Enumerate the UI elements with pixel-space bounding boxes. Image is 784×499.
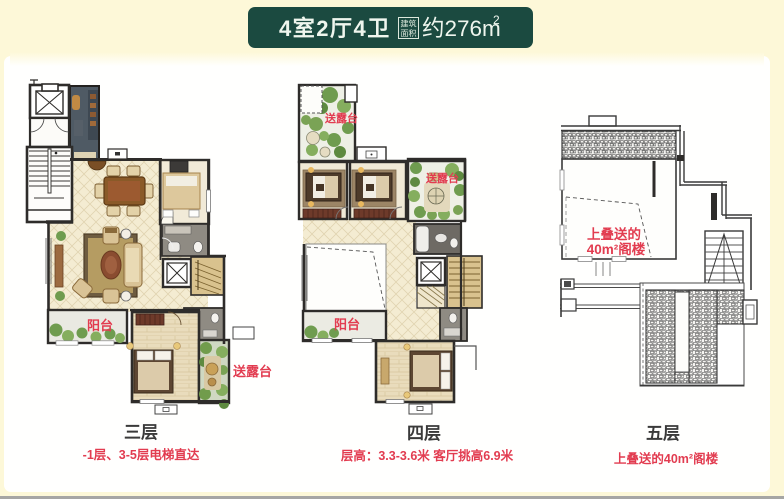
svg-text:-1层、3-5层电梯直达: -1层、3-5层电梯直达	[83, 447, 200, 462]
svg-text:四层: 四层	[407, 424, 441, 443]
svg-text:上叠送的: 上叠送的	[587, 226, 641, 242]
svg-text:阳台: 阳台	[334, 317, 360, 332]
svg-text:上叠送的40m²阁楼: 上叠送的40m²阁楼	[614, 451, 719, 466]
svg-text:层高：3.3-3.6米 客厅挑高6.9米: 层高：3.3-3.6米 客厅挑高6.9米	[341, 448, 514, 463]
svg-text:送露台: 送露台	[324, 111, 358, 125]
svg-text:送露台: 送露台	[232, 364, 272, 379]
svg-text:阳台: 阳台	[87, 318, 113, 333]
svg-text:面积: 面积	[401, 28, 417, 38]
svg-text:4室2厅4卫: 4室2厅4卫	[279, 16, 391, 41]
svg-text:三层: 三层	[124, 423, 158, 442]
svg-text:送露台: 送露台	[425, 171, 459, 185]
svg-text:约276m: 约276m	[422, 16, 501, 41]
svg-text:建筑: 建筑	[401, 19, 417, 29]
svg-text:40m²阁楼: 40m²阁楼	[587, 241, 646, 257]
svg-text:五层: 五层	[646, 424, 680, 443]
svg-text:2: 2	[493, 13, 500, 27]
